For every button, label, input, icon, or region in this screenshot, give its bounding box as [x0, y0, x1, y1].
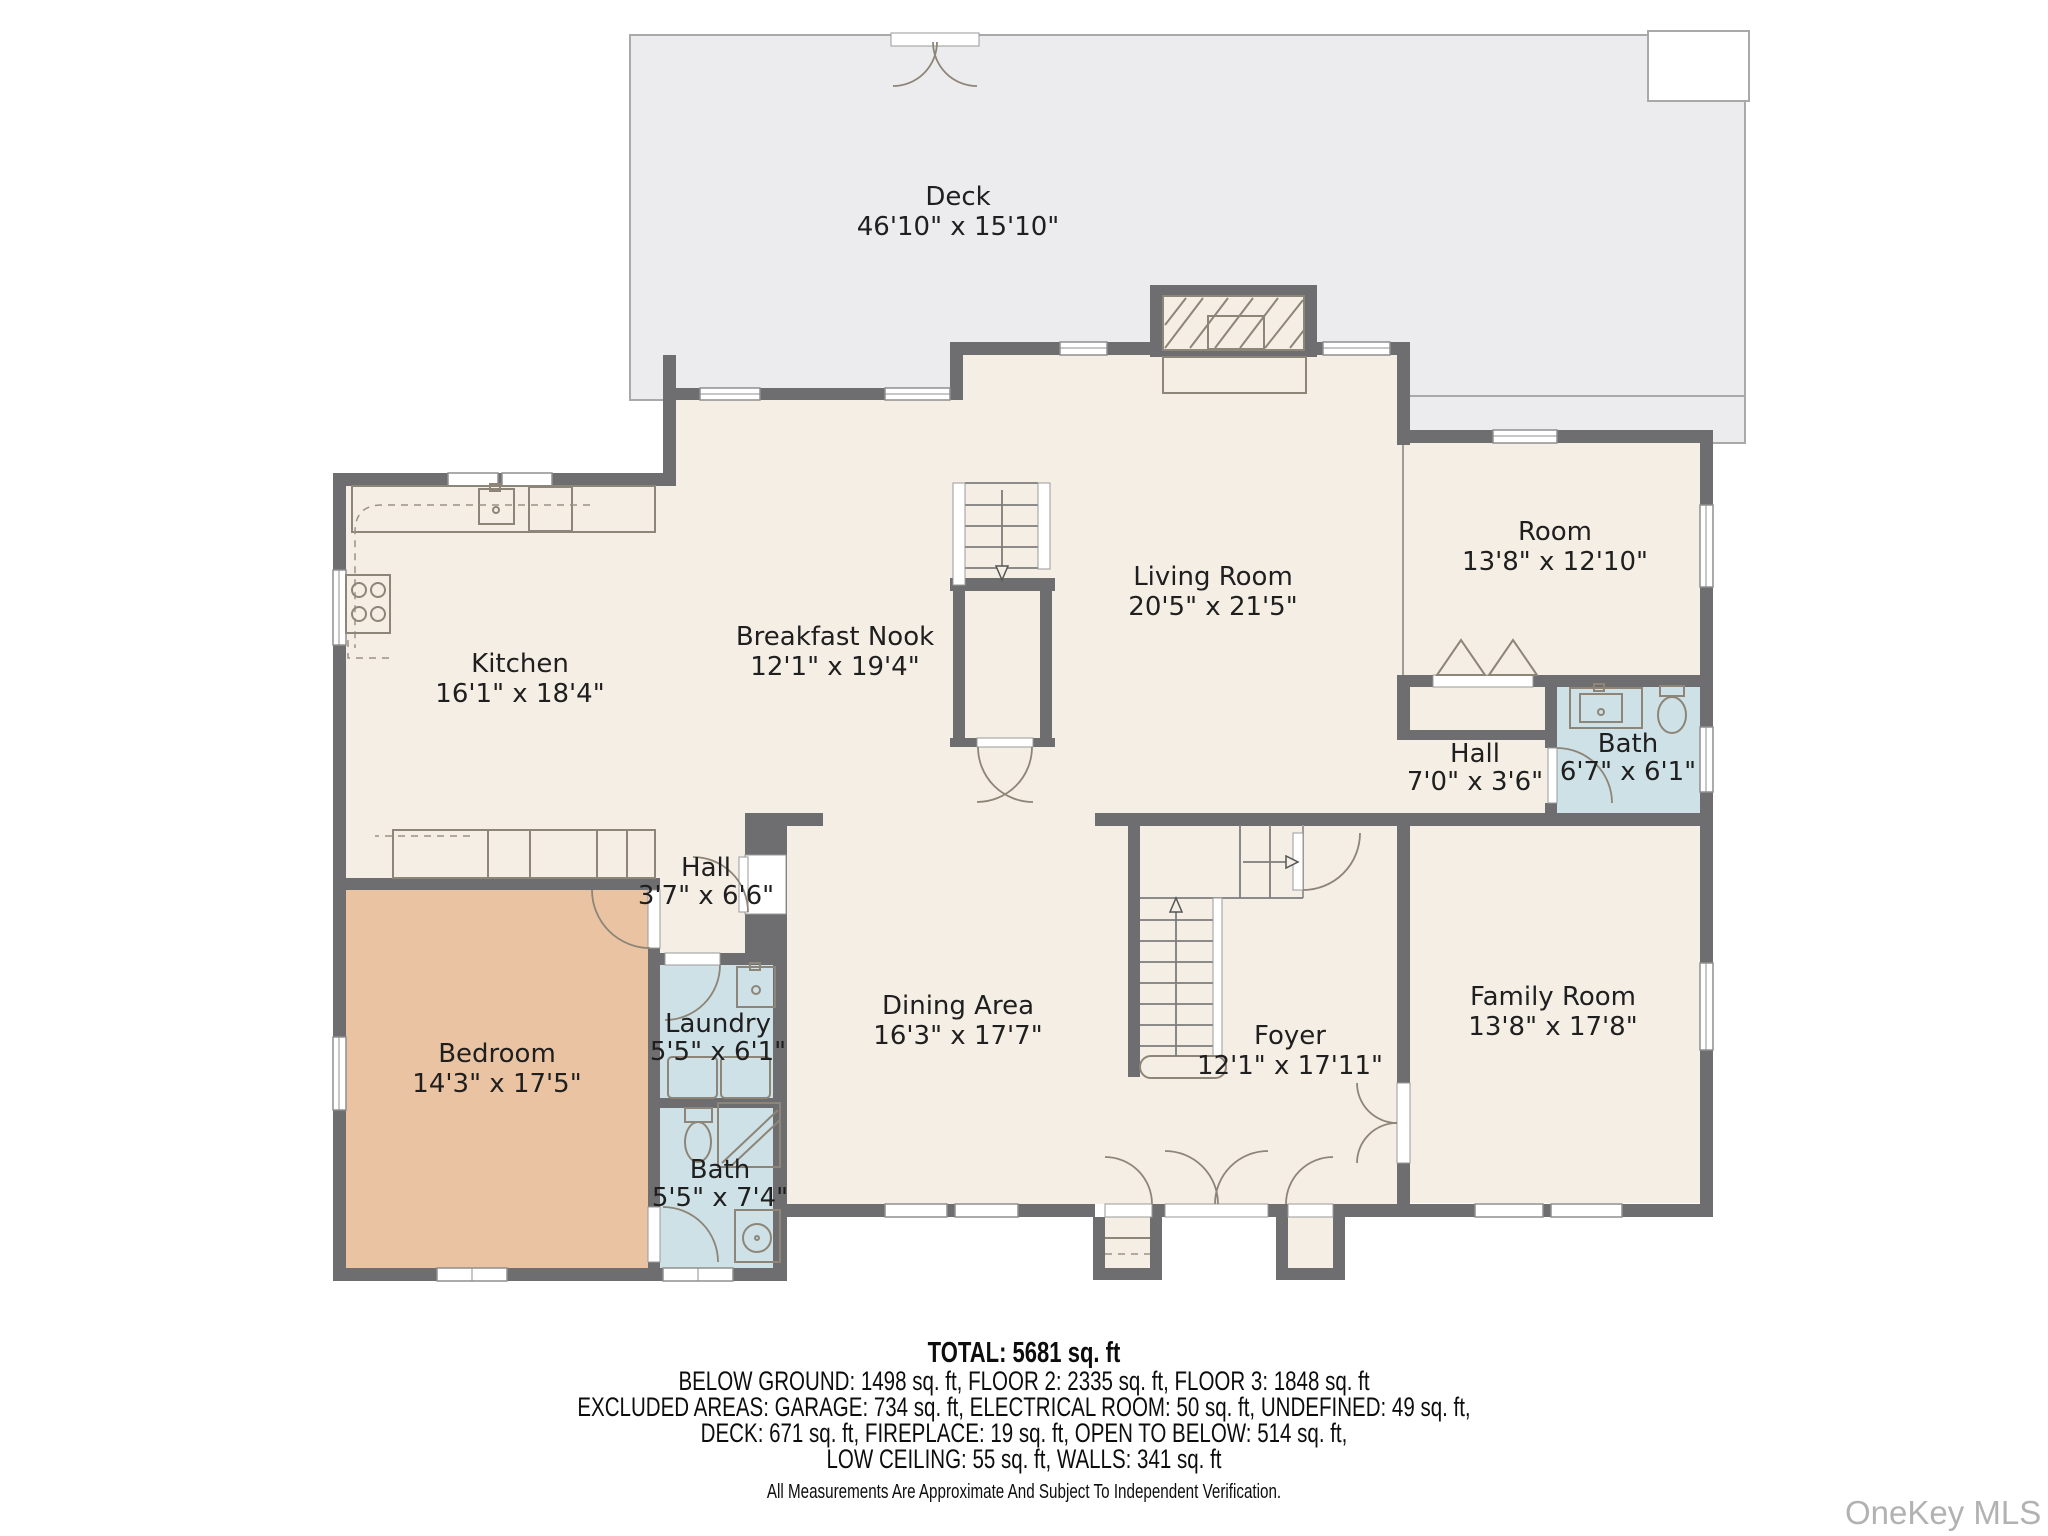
area-summary: TOTAL: 5681 sq. ft BELOW GROUND: 1498 sq… [0, 1338, 2048, 1503]
room-label-family: Family Room13'8" x 17'8" [1468, 982, 1637, 1042]
fireplace [1150, 285, 1317, 393]
room-label-living: Living Room20'5" x 21'5" [1128, 562, 1297, 622]
summary-disclaimer: All Measurements Are Approximate And Sub… [246, 1481, 1802, 1503]
summary-total: TOTAL: 5681 sq. ft [246, 1338, 1802, 1368]
summary-line4: LOW CEILING: 55 sq. ft, WALLS: 341 sq. f… [246, 1446, 1802, 1472]
room-label-dining: Dining Area16'3" x 17'7" [873, 991, 1042, 1051]
hearth [1163, 357, 1306, 393]
room-label-nook: Breakfast Nook12'1" x 19'4" [736, 622, 934, 682]
room-label-laundry: Laundry5'5" x 6'1" [650, 1009, 786, 1067]
watermark: OneKey MLS [1845, 1494, 2045, 1532]
floorplan-drawing: Deck46'10" x 15'10" Kitchen16'1" x 18'4"… [0, 0, 2048, 1536]
summary-line3: DECK: 671 sq. ft, FIREPLACE: 19 sq. ft, … [246, 1420, 1802, 1446]
summary-line2: EXCLUDED AREAS: GARAGE: 734 sq. ft, ELEC… [246, 1394, 1802, 1420]
floorplan-page: Deck46'10" x 15'10" Kitchen16'1" x 18'4"… [0, 0, 2048, 1536]
summary-line1: BELOW GROUND: 1498 sq. ft, FLOOR 2: 2335… [246, 1368, 1802, 1394]
deck-door-sill [891, 33, 979, 46]
